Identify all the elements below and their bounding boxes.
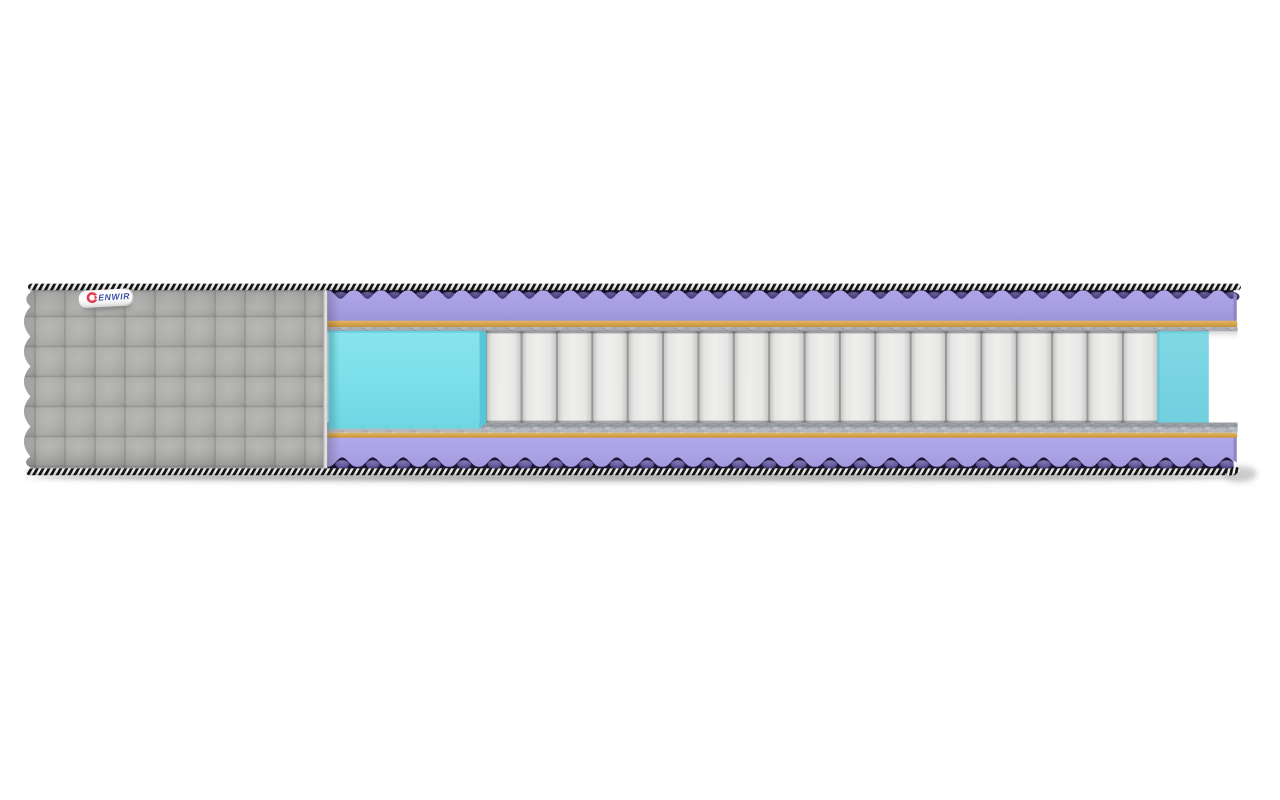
svg-text:ENWIR: ENWIR [98, 291, 131, 303]
